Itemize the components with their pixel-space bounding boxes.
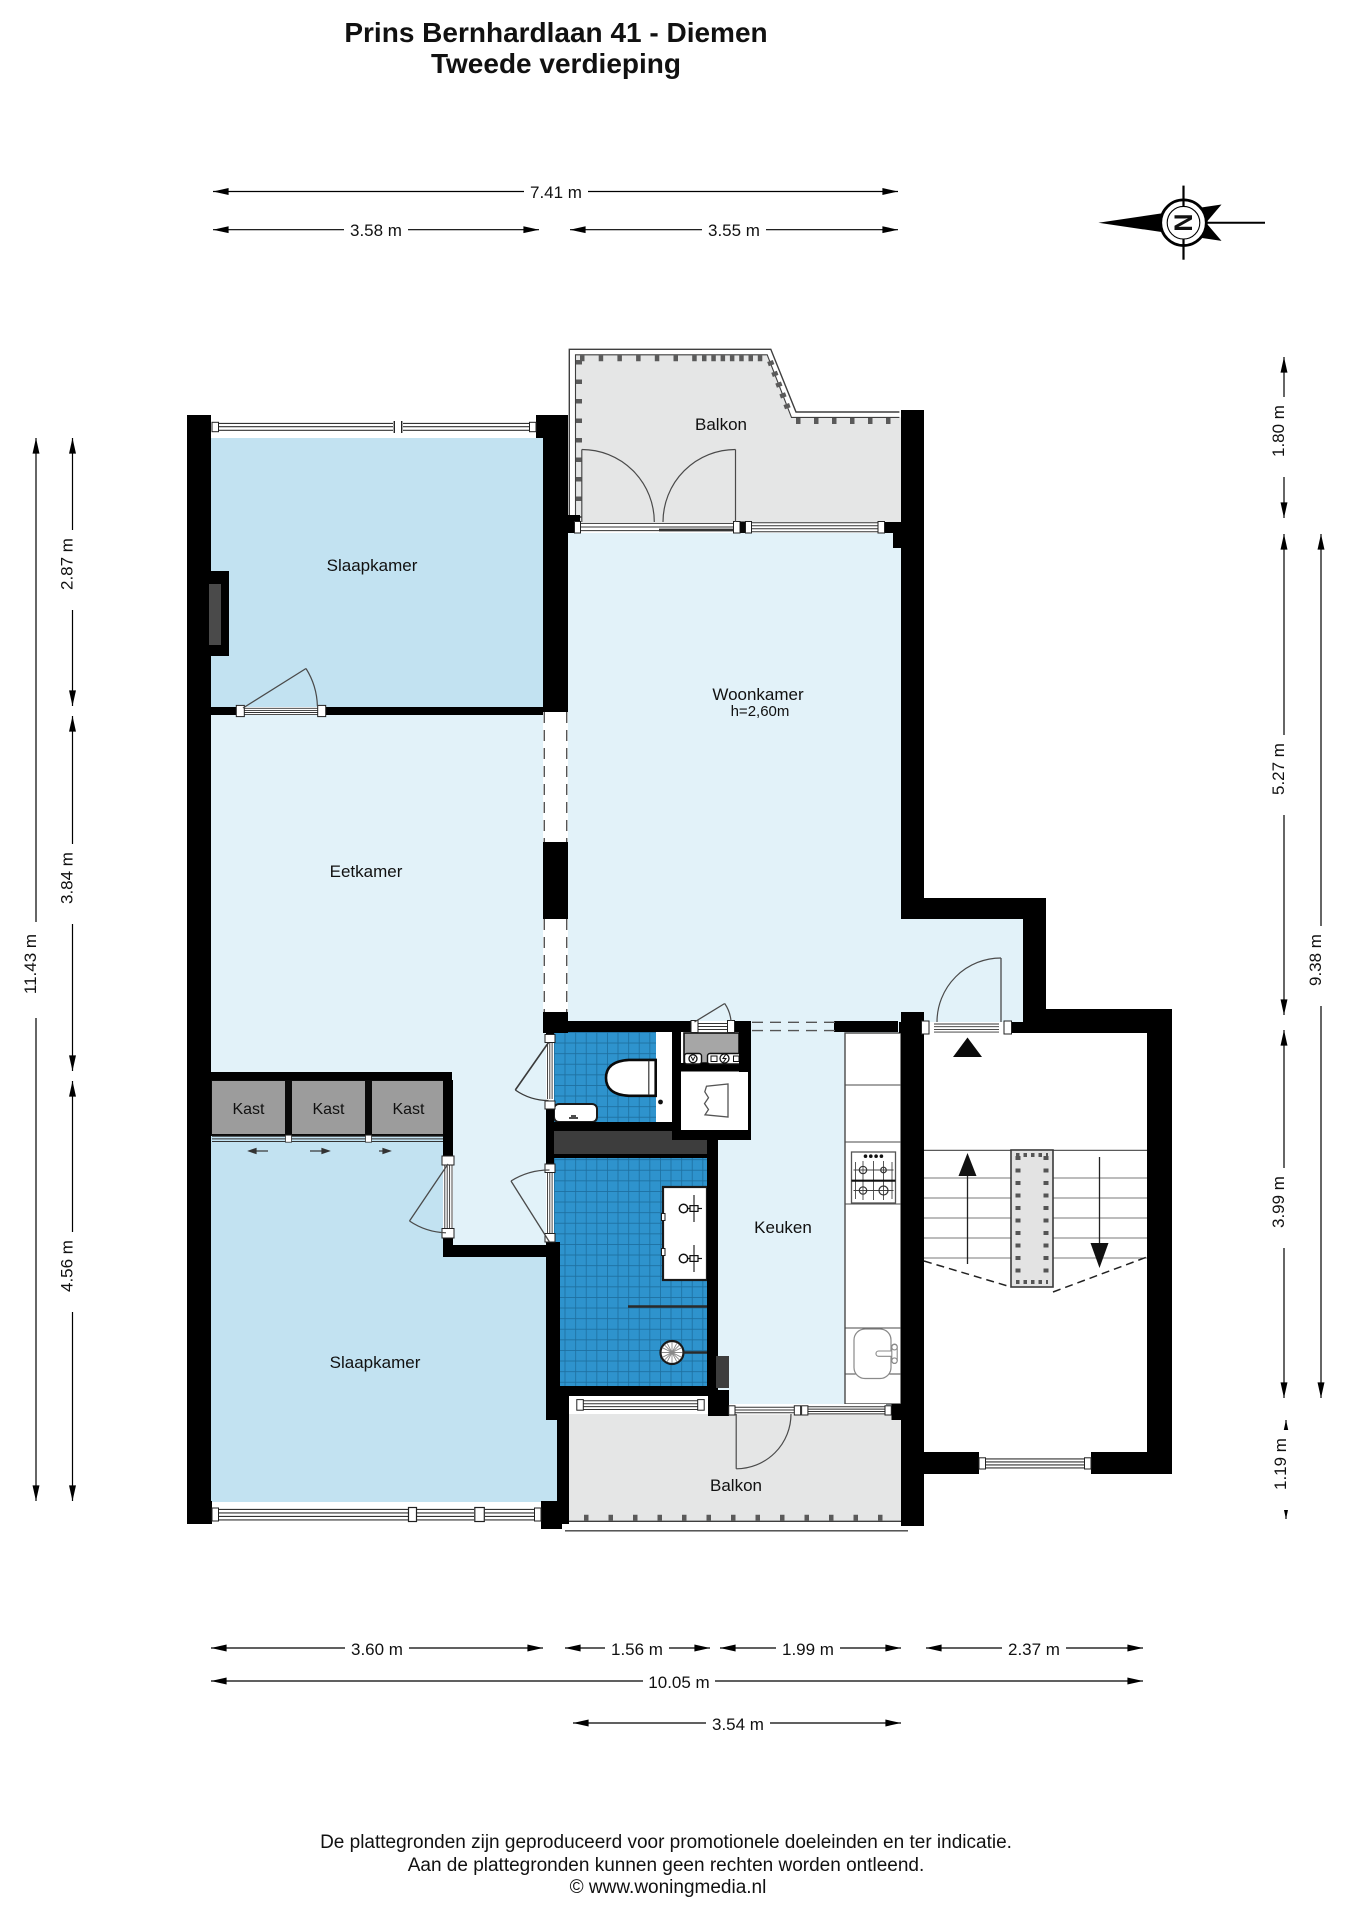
svg-text:3.60 m: 3.60 m: [351, 1640, 403, 1659]
svg-text:1.99 m: 1.99 m: [782, 1640, 834, 1659]
svg-text:1.80 m: 1.80 m: [1269, 405, 1288, 457]
svg-text:© www.woningmedia.nl: © www.woningmedia.nl: [570, 1877, 767, 1898]
svg-text:3.84 m: 3.84 m: [58, 852, 77, 904]
svg-text:1.56 m: 1.56 m: [611, 1640, 663, 1659]
svg-text:Aan de plattegronden kunnen ge: Aan de plattegronden kunnen geen rechten…: [408, 1855, 925, 1876]
svg-text:4.56 m: 4.56 m: [58, 1240, 77, 1292]
svg-text:7.41 m: 7.41 m: [530, 183, 582, 202]
svg-text:3.54 m: 3.54 m: [712, 1715, 764, 1734]
svg-text:N: N: [1169, 214, 1197, 232]
svg-text:3.58 m: 3.58 m: [350, 221, 402, 240]
svg-text:Kast: Kast: [312, 1101, 345, 1118]
svg-text:Kast: Kast: [232, 1101, 265, 1118]
svg-text:Prins Bernhardlaan 41 - Diemen: Prins Bernhardlaan 41 - Diemen: [344, 17, 767, 48]
svg-text:10.05 m: 10.05 m: [648, 1673, 709, 1692]
svg-text:2.37 m: 2.37 m: [1008, 1640, 1060, 1659]
svg-text:11.43 m: 11.43 m: [21, 934, 40, 994]
svg-text:De plattegronden zijn geproduc: De plattegronden zijn geproduceerd voor …: [320, 1832, 1012, 1853]
svg-text:2.87 m: 2.87 m: [58, 538, 77, 590]
svg-text:3.55 m: 3.55 m: [708, 221, 760, 240]
svg-text:Kast: Kast: [392, 1101, 425, 1118]
svg-text:3.99 m: 3.99 m: [1269, 1176, 1288, 1228]
svg-text:1.19 m: 1.19 m: [1271, 1438, 1290, 1490]
svg-text:Keuken: Keuken: [754, 1218, 812, 1237]
svg-text:5.27 m: 5.27 m: [1269, 743, 1288, 795]
svg-text:Slaapkamer: Slaapkamer: [330, 1353, 421, 1372]
svg-text:Tweede verdieping: Tweede verdieping: [431, 48, 681, 79]
svg-text:Balkon: Balkon: [695, 415, 747, 434]
svg-text:Eetkamer: Eetkamer: [330, 862, 403, 881]
svg-text:9.38 m: 9.38 m: [1306, 934, 1325, 986]
svg-text:Woonkamer: Woonkamer: [712, 685, 804, 704]
svg-text:h=2,60m: h=2,60m: [731, 703, 790, 720]
svg-text:Balkon: Balkon: [710, 1476, 762, 1495]
svg-text:Slaapkamer: Slaapkamer: [327, 556, 418, 575]
